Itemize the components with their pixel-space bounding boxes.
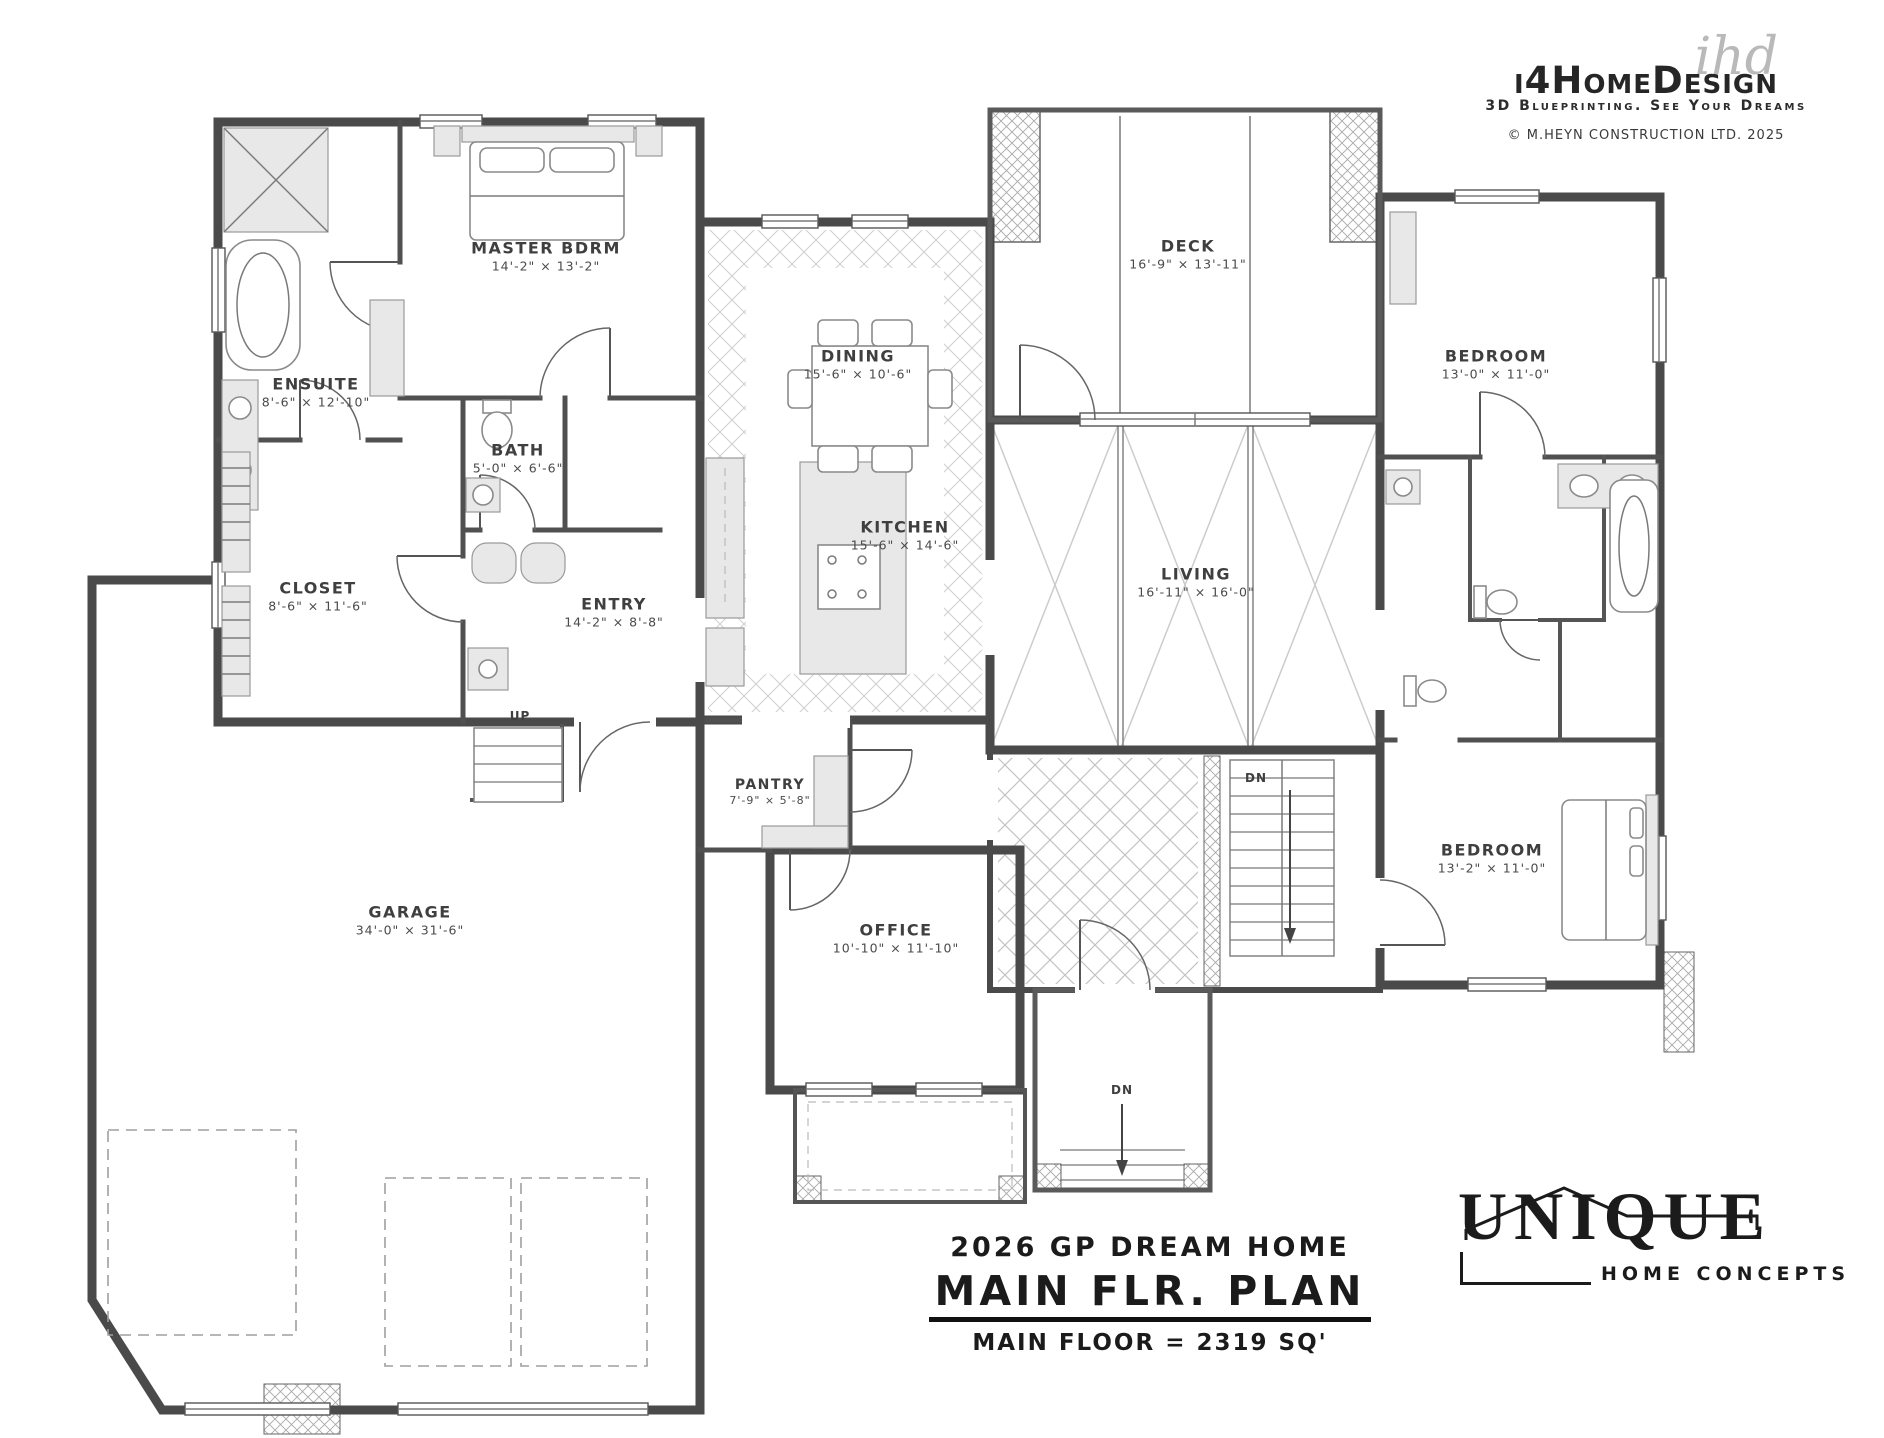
furniture-entry <box>468 543 565 690</box>
stair-label-up: UP <box>510 709 531 723</box>
furniture-master-suite <box>222 126 662 696</box>
designer-logo: ihd i4HomeDesign 3D Blueprinting. See Yo… <box>1456 34 1836 143</box>
floor-patterns <box>990 116 1380 750</box>
stair-label-dn-main: DN <box>1245 771 1267 785</box>
floor-area: MAIN FLOOR = 2319 SQ' <box>920 1330 1380 1356</box>
builder-tagline: HOME CONCEPTS <box>1601 1263 1850 1285</box>
furniture-bath <box>466 400 512 512</box>
copyright-text: © M.HEYN CONSTRUCTION LTD. 2025 <box>1456 128 1836 143</box>
furniture-bath-wing <box>1386 464 1658 706</box>
stair-label-dn-deck: DN <box>1111 1083 1133 1097</box>
builder-logo-roof <box>1452 1178 1852 1242</box>
builder-logo-rule <box>1460 1252 1591 1285</box>
builder-logo: UNIQUE HOME CONCEPTS <box>1452 1178 1852 1285</box>
designer-logo-tagline: 3D Blueprinting. See Your Dreams <box>1456 98 1836 114</box>
project-title: 2026 GP DREAM HOME <box>920 1232 1380 1263</box>
furniture-pantry <box>762 756 848 848</box>
title-block: 2026 GP DREAM HOME MAIN FLR. PLAN MAIN F… <box>920 1232 1380 1356</box>
designer-logo-name: i4HomeDesign <box>1456 59 1836 102</box>
sheet-title: MAIN FLR. PLAN <box>929 1267 1372 1322</box>
garage-markings <box>108 1102 1012 1366</box>
floorplan-sheet: MASTER BDRM 14'-2" × 13'-2" ENSUITE 8'-6… <box>0 0 1884 1438</box>
